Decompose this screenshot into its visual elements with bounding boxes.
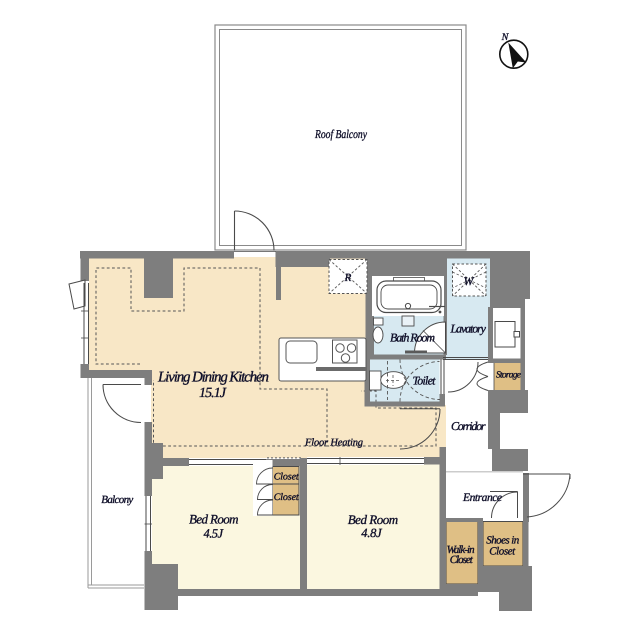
svg-text:Closet: Closet <box>274 492 299 503</box>
svg-text:Living Dining Kitchen: Living Dining Kitchen <box>157 370 269 386</box>
svg-text:Entrance: Entrance <box>462 492 502 504</box>
svg-text:Storage: Storage <box>496 371 521 381</box>
svg-text:Lavatory: Lavatory <box>450 322 487 336</box>
svg-text:W: W <box>464 274 475 288</box>
svg-text:Closet: Closet <box>450 554 474 566</box>
svg-text:4.8J: 4.8J <box>361 526 383 540</box>
svg-text:Bed Room: Bed Room <box>189 512 239 527</box>
svg-text:Balcony: Balcony <box>101 494 133 506</box>
svg-text:Closet: Closet <box>274 471 299 482</box>
svg-text:Closet: Closet <box>489 546 516 558</box>
svg-text:R: R <box>344 272 352 284</box>
svg-text:Floor Heating: Floor Heating <box>304 438 363 449</box>
svg-text:N: N <box>501 32 510 43</box>
svg-text:Roof Balcony: Roof Balcony <box>314 127 367 141</box>
svg-text:Bed Room: Bed Room <box>348 512 399 527</box>
svg-text:Toilet: Toilet <box>413 374 437 388</box>
svg-text:15.1J: 15.1J <box>199 386 227 401</box>
svg-text:Corridor: Corridor <box>451 419 486 433</box>
svg-text:Bath Room: Bath Room <box>390 331 435 345</box>
svg-text:4.5J: 4.5J <box>204 527 225 541</box>
